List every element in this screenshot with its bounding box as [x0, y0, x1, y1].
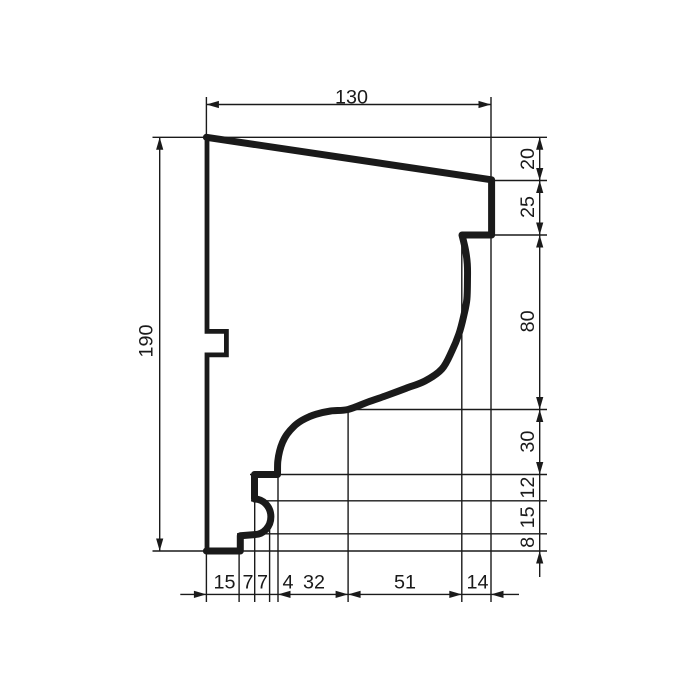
- svg-text:25: 25: [517, 196, 539, 218]
- svg-text:15: 15: [517, 506, 539, 528]
- svg-text:30: 30: [517, 431, 539, 453]
- svg-text:7: 7: [242, 571, 253, 593]
- svg-text:15: 15: [213, 571, 235, 593]
- svg-text:20: 20: [517, 148, 539, 170]
- svg-text:51: 51: [394, 571, 416, 593]
- svg-text:80: 80: [517, 310, 539, 332]
- svg-text:14: 14: [466, 571, 488, 593]
- svg-text:130: 130: [335, 87, 368, 109]
- svg-text:4: 4: [282, 571, 293, 593]
- svg-text:190: 190: [136, 324, 158, 357]
- svg-text:8: 8: [517, 537, 539, 548]
- svg-text:12: 12: [517, 477, 539, 499]
- svg-text:7: 7: [257, 571, 268, 593]
- svg-text:32: 32: [303, 571, 325, 593]
